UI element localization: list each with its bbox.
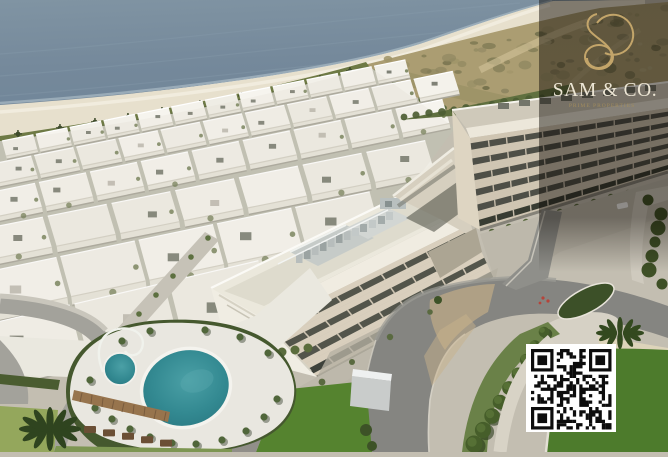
svg-text:PRIME PROPERTIES: PRIME PROPERTIES xyxy=(569,103,635,109)
svg-text:SAM & CO.: SAM & CO. xyxy=(553,80,658,101)
